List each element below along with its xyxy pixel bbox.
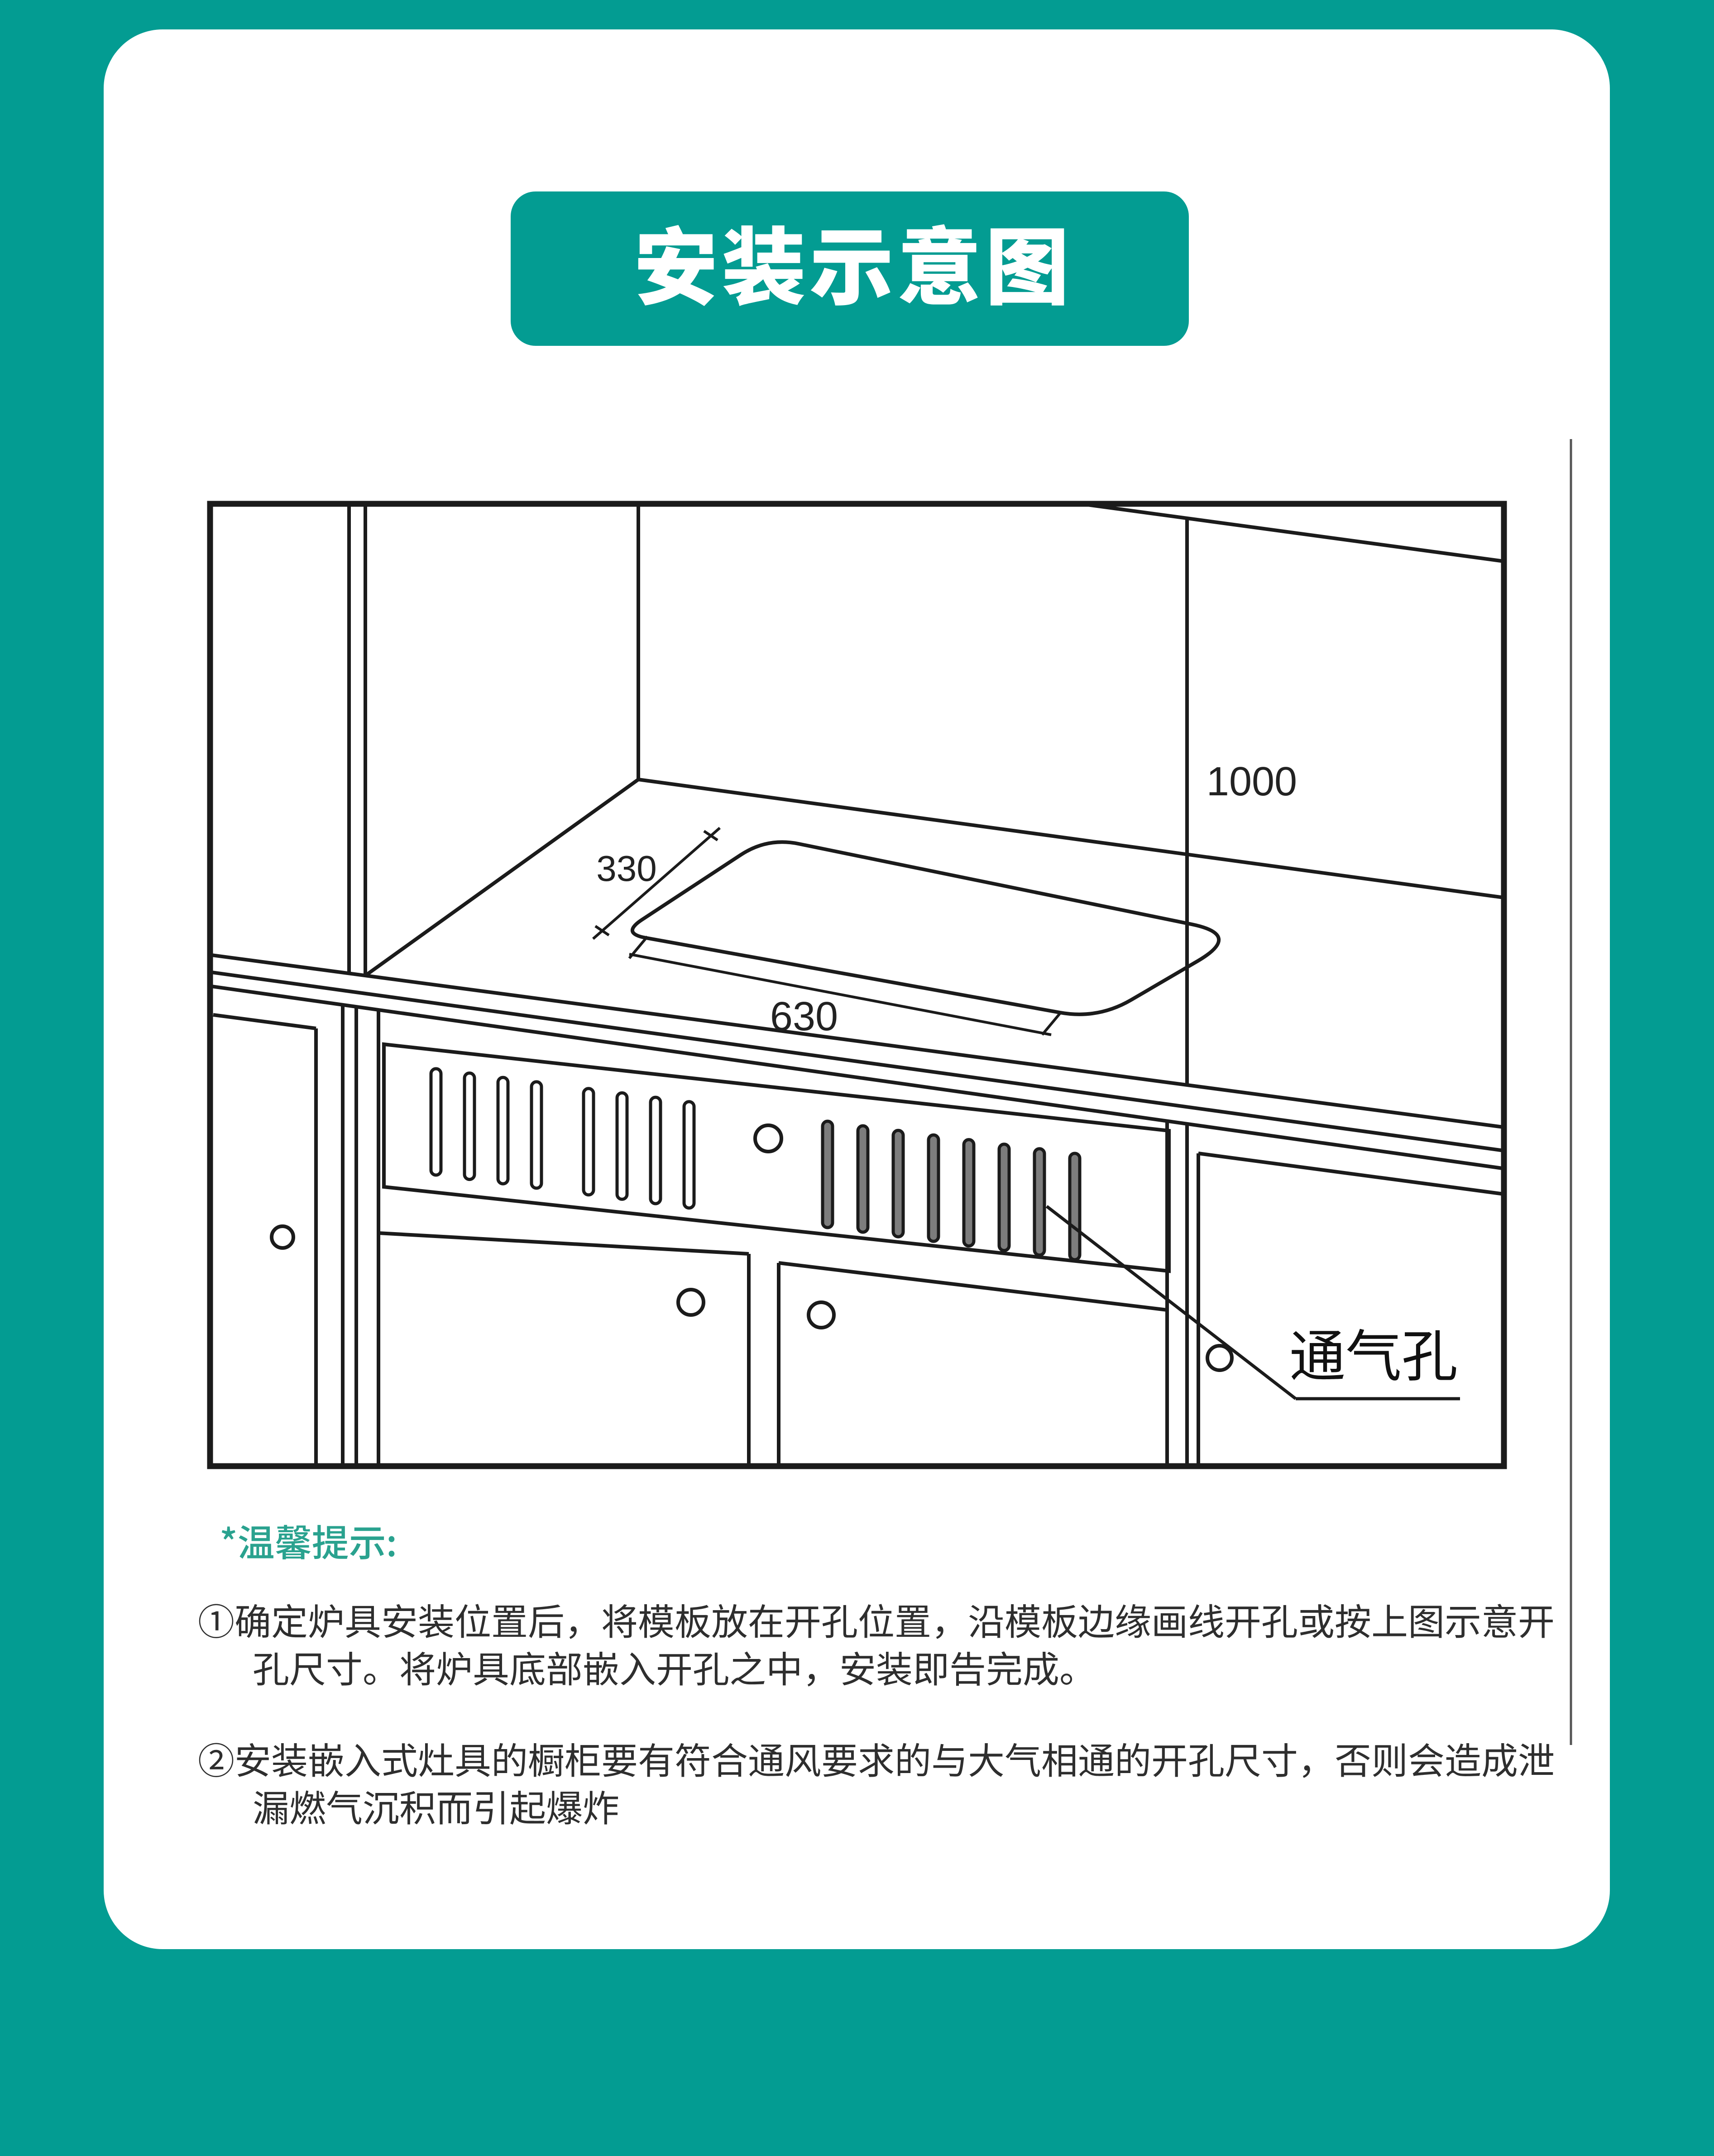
svg-text:1000: 1000 xyxy=(1207,759,1297,804)
svg-text:330: 330 xyxy=(596,848,656,889)
svg-text:630: 630 xyxy=(770,994,838,1039)
